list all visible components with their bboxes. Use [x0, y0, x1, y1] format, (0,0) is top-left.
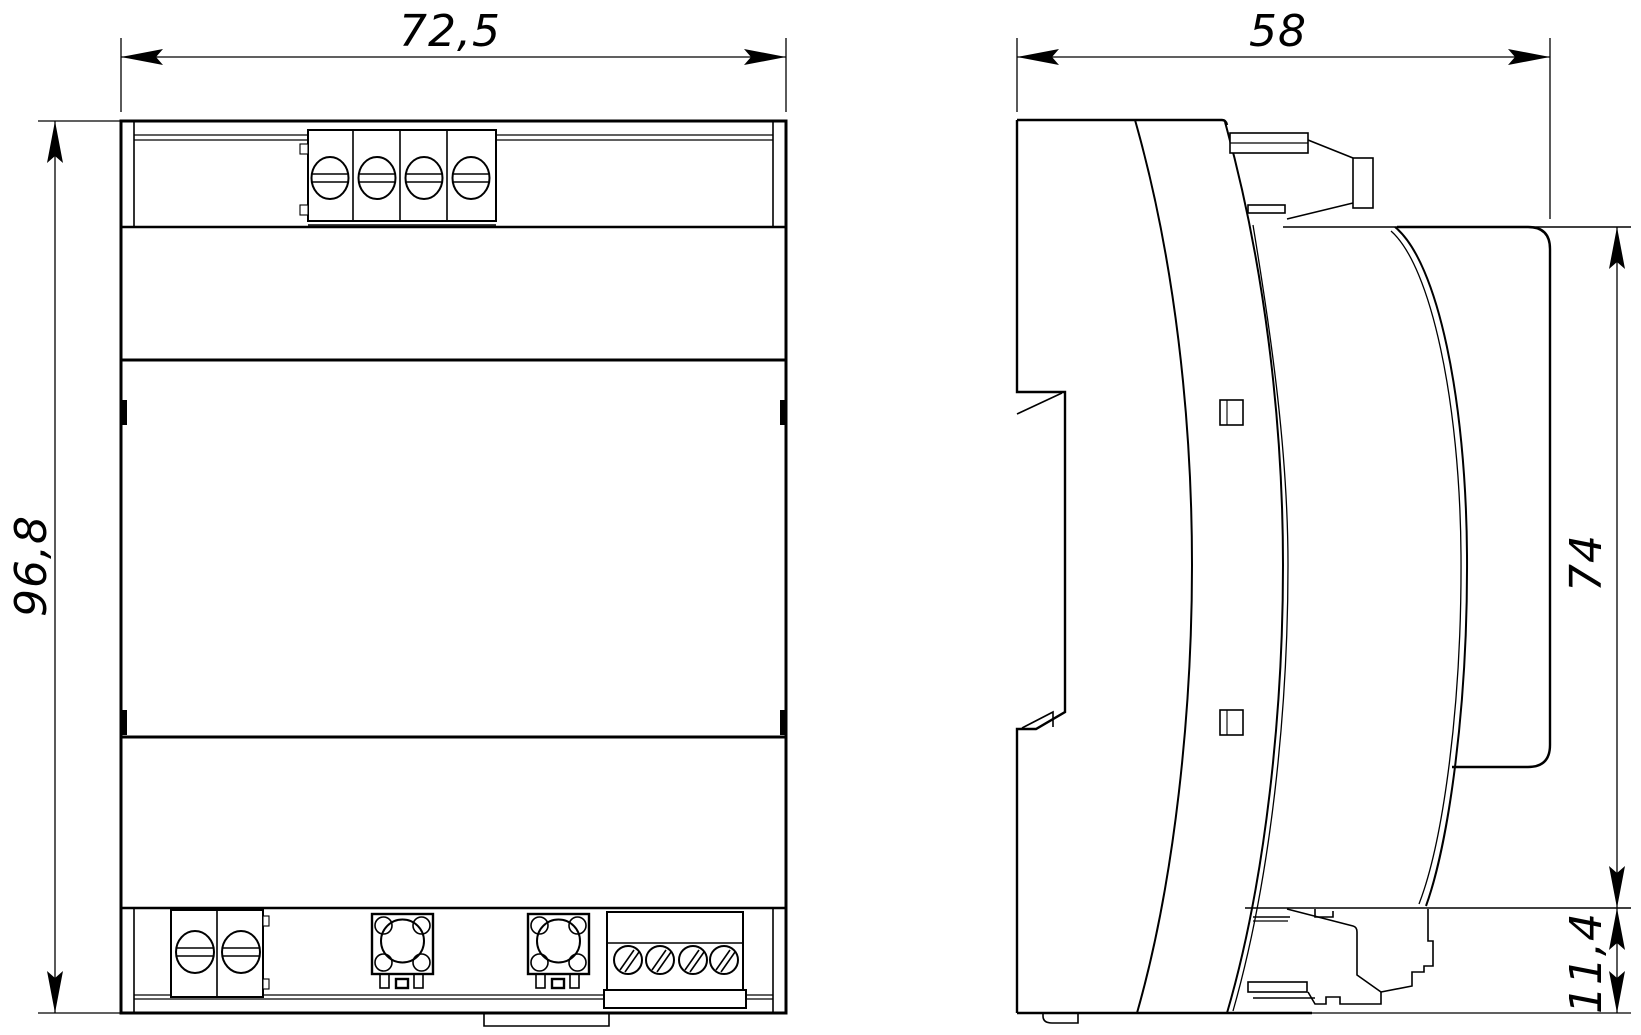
front-body-outline [121, 121, 786, 1013]
latch-mark [780, 400, 786, 425]
button-leg [380, 974, 389, 988]
push-button [372, 914, 433, 988]
side-top-edge [1017, 120, 1227, 125]
top-terminal-block [300, 130, 496, 225]
side-clip-window [1220, 400, 1243, 735]
back-profile [1017, 120, 1065, 1013]
bottom-clip [1248, 909, 1433, 1004]
terminal-base-plate [604, 990, 746, 1008]
bottom-terminal-block-2 [171, 910, 269, 997]
terminal-tab [263, 979, 269, 989]
button-pad [396, 979, 408, 988]
bottom-foot [1043, 1013, 1078, 1023]
push-button [528, 914, 589, 988]
button-leg [536, 974, 545, 988]
dim-label-depth: 58 [1249, 6, 1307, 57]
bottom-terminal-block-4 [604, 912, 746, 1008]
dimension-overall-height: 96,8 [6, 121, 121, 1013]
dimension-panel-height: 74 [1561, 227, 1625, 908]
dimension-drawing: 72,5 96,8 58 74 [0, 0, 1641, 1035]
housing-curve-back [1135, 120, 1192, 1013]
housing-curve-mid-inner [1233, 225, 1288, 1011]
terminal-block-body [308, 130, 496, 221]
dim-label-clip-height: 11,4 [1561, 912, 1612, 1014]
rail-pawl [1022, 712, 1053, 728]
front-view [121, 121, 786, 1026]
drawing-canvas: 72,5 96,8 58 74 [0, 0, 1641, 1035]
dim-label-width: 72,5 [399, 6, 501, 57]
side-view [1017, 120, 1631, 1023]
terminal-tab [300, 144, 308, 154]
rail-pawl [1017, 393, 1062, 414]
front-face-curve [1395, 227, 1467, 906]
latch-mark [121, 710, 127, 735]
button-leg [570, 974, 579, 988]
dimensions: 72,5 96,8 58 74 [6, 6, 1625, 1014]
latch-mark [121, 400, 127, 425]
dimension-overall-depth: 58 [1017, 6, 1550, 219]
din-slider-tab [484, 1013, 609, 1026]
button-pad [552, 979, 564, 988]
housing-curve-mid [1225, 122, 1283, 1013]
front-bezel [1397, 227, 1550, 767]
dimension-overall-width: 72,5 [121, 6, 786, 112]
latch-mark [780, 710, 786, 735]
terminal-tab [300, 205, 308, 215]
button-leg [414, 974, 423, 988]
dim-label-panel-height: 74 [1561, 534, 1612, 592]
dimension-clip-height: 11,4 [1561, 908, 1625, 1014]
top-connector [1230, 133, 1373, 219]
dim-label-height: 96,8 [6, 515, 57, 617]
terminal-tab [263, 916, 269, 926]
